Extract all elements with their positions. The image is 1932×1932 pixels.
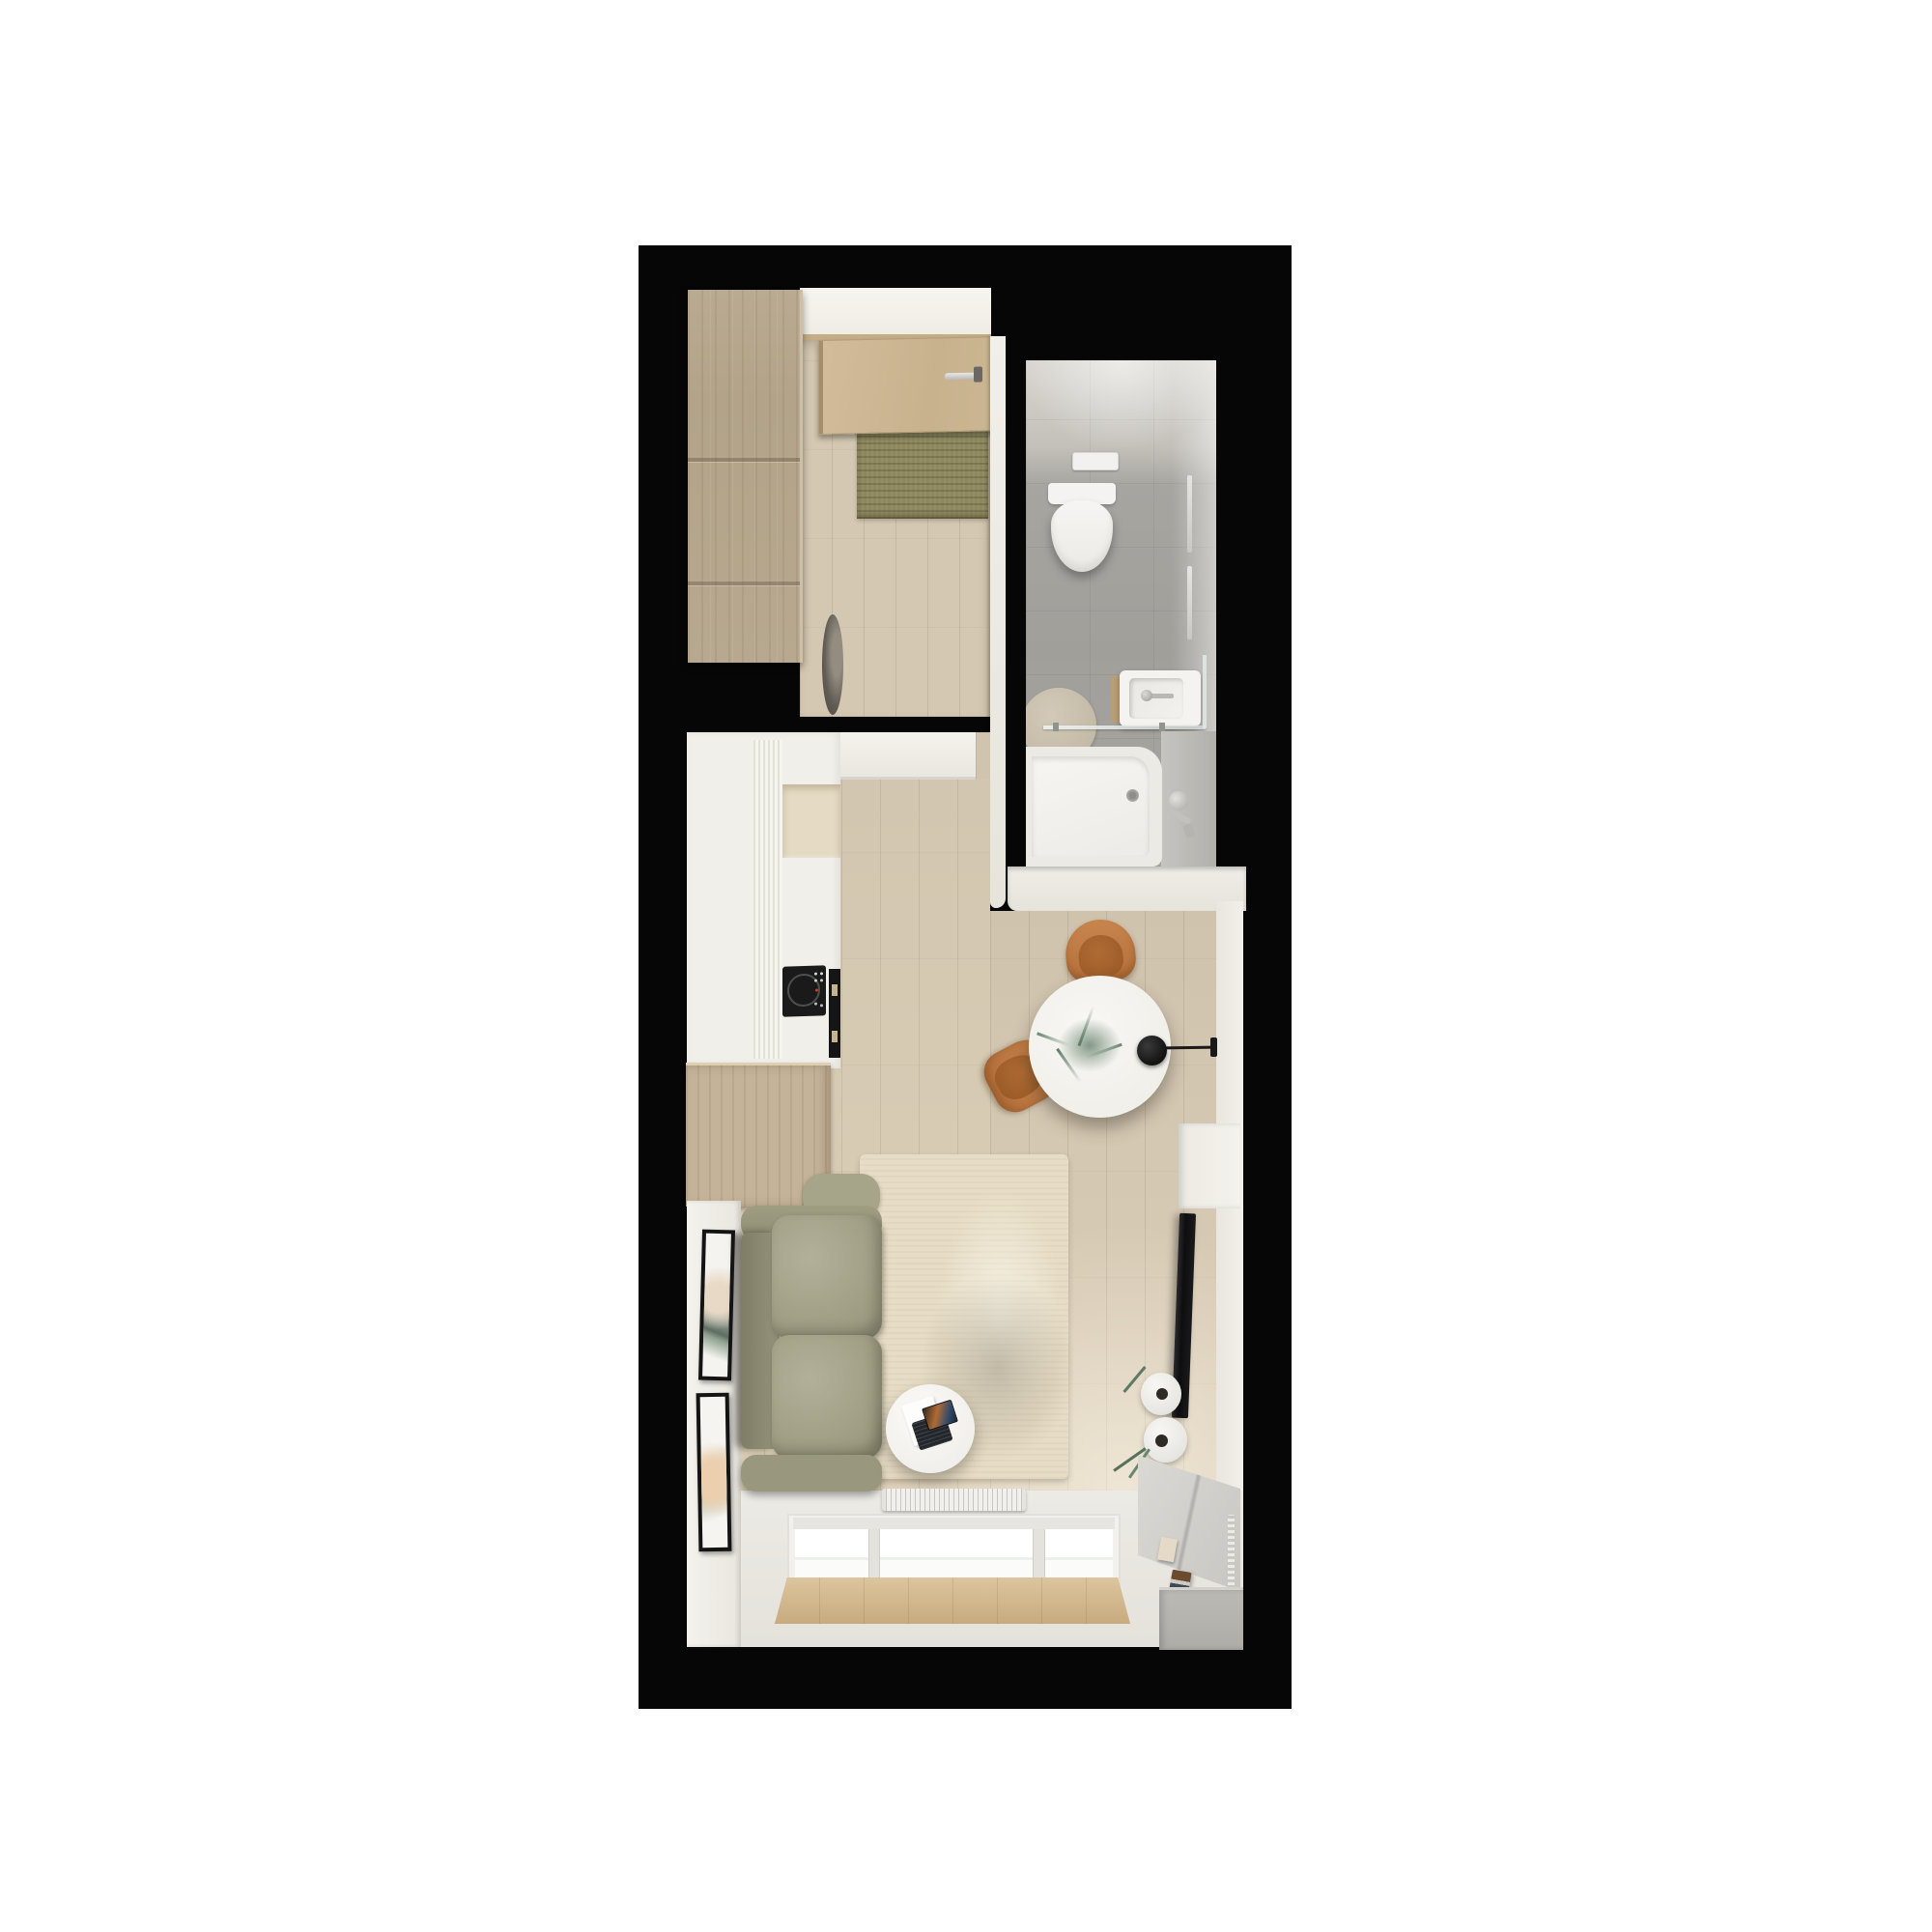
dining-chair[interactable] <box>1063 917 1137 984</box>
page-background <box>0 0 1932 1932</box>
wardrobe-divider <box>688 582 800 585</box>
sofa[interactable] <box>741 1169 882 1492</box>
window-mullion <box>1033 1529 1045 1577</box>
picture-frame <box>696 1393 732 1552</box>
bathtub-ledge <box>1161 731 1216 867</box>
rail-slot <box>832 984 838 996</box>
kitchen-utensil-rail <box>829 969 840 1058</box>
sofa-armrest <box>741 1455 882 1492</box>
toilet-flush-plate[interactable] <box>1072 452 1119 470</box>
cooktop-controls[interactable] <box>814 973 817 976</box>
rail-slot <box>832 1031 838 1042</box>
vase-opening <box>1155 1435 1168 1447</box>
faucet-knob-icon[interactable] <box>1141 690 1152 701</box>
sofa-cushion <box>772 1215 882 1339</box>
wall-ribbed-vent <box>1228 1515 1235 1588</box>
burner-ring-icon <box>787 973 820 1007</box>
window-glass <box>795 1529 1113 1577</box>
picture-frame <box>698 1230 735 1381</box>
frame-art <box>702 1234 731 1378</box>
wall-lamp-mount <box>1210 1037 1217 1057</box>
sofa-cushion <box>772 1335 882 1459</box>
towel-rail[interactable] <box>1187 566 1192 639</box>
kitchen-top-wall <box>818 732 976 780</box>
doormat <box>857 430 988 519</box>
induction-cooktop[interactable] <box>782 965 826 1017</box>
wardrobe-divider <box>688 458 800 462</box>
door-handle-base <box>974 366 982 382</box>
vase <box>1144 1417 1187 1463</box>
corner-unit <box>1159 1587 1243 1650</box>
toilet[interactable] <box>1051 500 1113 572</box>
bathroom-bottom-wall <box>1008 867 1246 911</box>
hall-top-wall <box>800 288 991 336</box>
hand-shower-icon[interactable] <box>1182 823 1196 839</box>
window-head-strip <box>793 1518 1115 1529</box>
shower-glass-edge <box>1203 655 1207 728</box>
bathroom-ceiling-glow <box>1026 360 1216 447</box>
towel-rail[interactable] <box>1187 475 1192 553</box>
window-mullion <box>868 1529 880 1577</box>
floorplan-card <box>639 245 1292 1709</box>
bathtub-interior <box>1032 756 1150 857</box>
glass-hinge <box>1159 723 1165 731</box>
vase-opening <box>1156 1388 1168 1400</box>
bath-mixer-head-icon[interactable] <box>1169 791 1188 810</box>
wardrobe[interactable] <box>688 290 803 663</box>
entry-door-leaf[interactable] <box>818 336 1006 435</box>
glass-hinge <box>1053 723 1059 731</box>
radiator <box>882 1489 1026 1511</box>
window[interactable] <box>787 1514 1121 1624</box>
basin-bowl <box>1129 678 1183 719</box>
bathtub[interactable] <box>1026 747 1162 867</box>
coffee-table[interactable] <box>886 1384 975 1473</box>
frame-art <box>700 1397 728 1548</box>
vase <box>1141 1373 1181 1415</box>
kitchen-fluted-panel <box>753 740 782 1059</box>
window-sill-wood <box>775 1577 1130 1624</box>
corridor-jamb-wall <box>990 336 1006 908</box>
shower-glass-screen <box>1043 725 1206 729</box>
wall-lamp-shade[interactable] <box>1137 1036 1167 1065</box>
washbasin[interactable] <box>1120 670 1201 726</box>
hall-floor-vase <box>822 614 843 715</box>
wall-step-pillar <box>1179 1123 1240 1208</box>
kitchen-counter-niche <box>782 784 840 858</box>
bathroom <box>1026 360 1216 867</box>
bathtub-drain-icon <box>1126 789 1139 802</box>
